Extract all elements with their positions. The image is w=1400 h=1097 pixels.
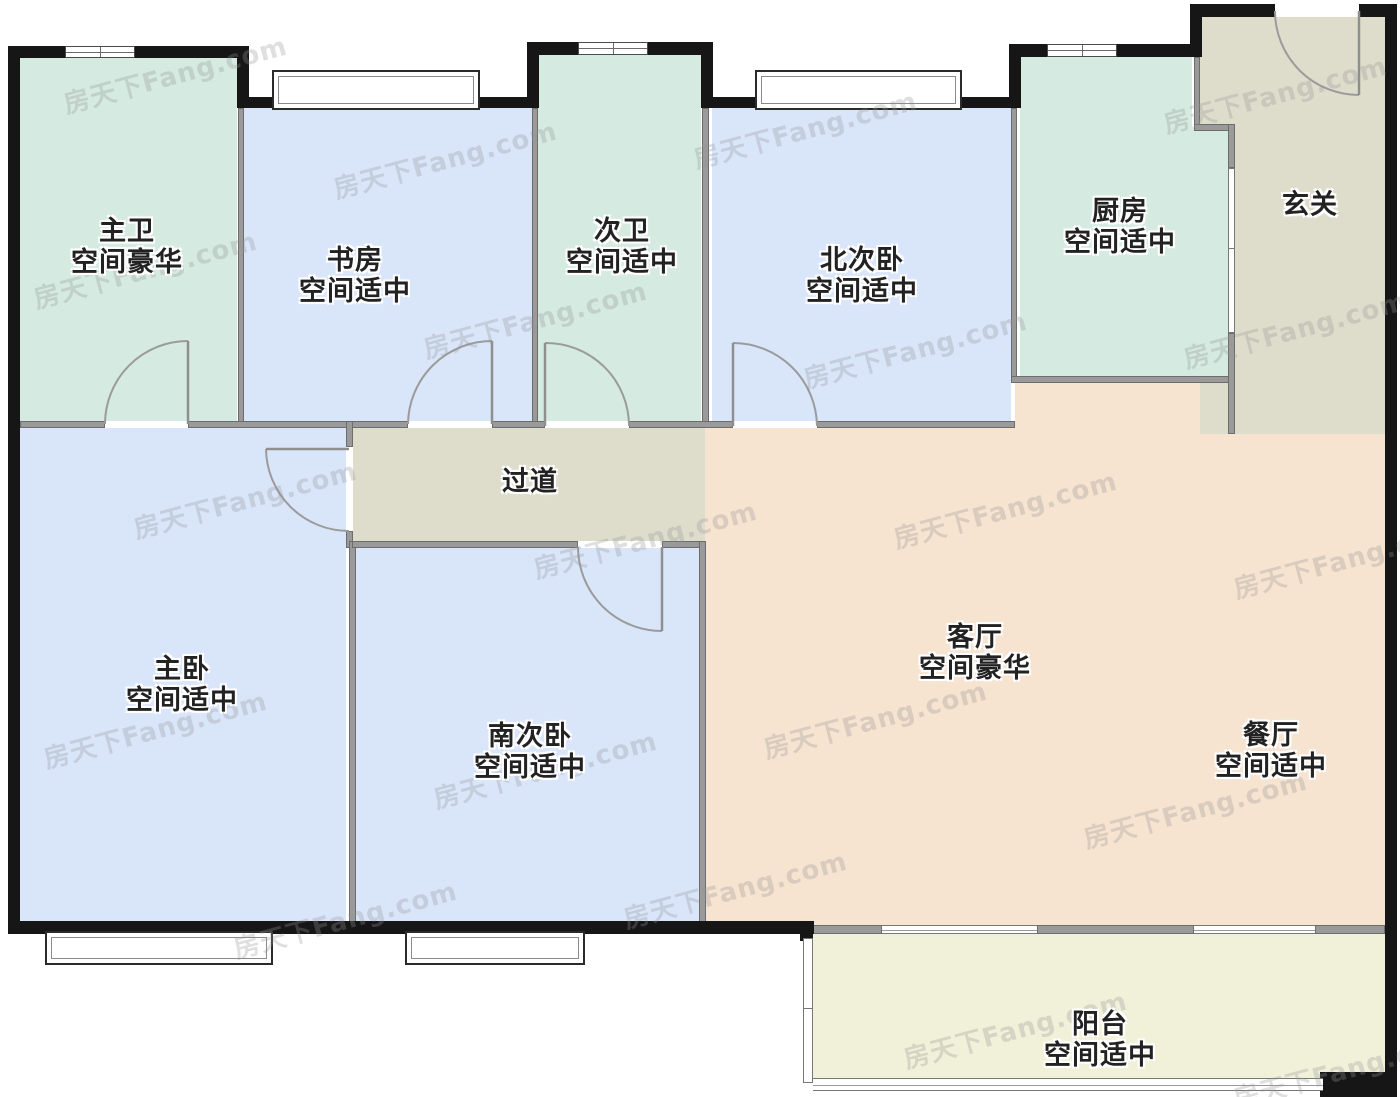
door-opening [408,421,492,428]
window [1228,168,1235,333]
floor-plan: 房天下Fang.com 房天下Fang.com 房天下Fang.com 房天下F… [0,0,1400,1097]
room-name: 主卫 [71,216,183,247]
door-opening [1275,4,1359,17]
room-tag: 空间适中 [299,276,411,307]
room-tag: 空间适中 [126,685,238,716]
room-name: 南次卧 [474,721,586,752]
interior-wall [20,421,105,428]
room-tag: 空间适中 [806,276,918,307]
kitchen-area-upper [1020,57,1192,129]
room-label-master-bath: 主卫 空间豪华 [71,216,183,278]
outer-wall [8,46,20,934]
window-mullion [813,1085,1323,1086]
room-name: 书房 [299,245,411,276]
door-opening [545,421,629,428]
window [1047,44,1117,57]
room-name: 厨房 [1064,196,1176,227]
bay-window [755,70,962,110]
interior-wall [238,108,244,425]
room-tag: 空间适中 [1064,227,1176,258]
room-name: 餐厅 [1215,720,1327,751]
bay-window-frame [278,76,474,104]
interior-wall [1011,376,1234,383]
room-label-kitchen: 厨房 空间适中 [1064,196,1176,258]
interior-wall [346,421,353,447]
room-name: 北次卧 [806,245,918,276]
room-tag: 空间适中 [474,752,586,783]
room-name: 阳台 [1044,1009,1156,1040]
interior-wall [699,541,706,922]
room-label-entry: 玄关 [1282,189,1338,220]
interior-wall [1011,108,1017,380]
outer-wall [701,97,759,108]
room-name: 过道 [502,466,558,497]
interior-wall [492,421,545,428]
window [813,1078,1323,1091]
window-mullion [804,1008,812,1009]
bay-window-frame [51,937,267,959]
window-mullion [1229,248,1234,249]
bay-window [405,931,585,965]
outer-wall [237,97,275,108]
outer-wall [1320,1072,1397,1097]
interior-wall [352,541,578,548]
window-mullion [100,47,101,57]
room-name: 玄关 [1282,189,1338,220]
interior-wall [702,108,709,425]
room-tag: 空间适中 [566,247,678,278]
interior-wall [1228,124,1235,168]
room-tag: 空间豪华 [919,653,1031,684]
door-opening [346,447,353,531]
room-tag: 空间适中 [1044,1040,1156,1071]
room-label-south-bedroom: 南次卧 空间适中 [474,721,586,783]
bay-window-frame [761,76,956,104]
room-name: 次卫 [566,216,678,247]
room-label-dining: 餐厅 空间适中 [1215,720,1327,782]
interior-wall [349,541,356,922]
room-label-second-bath: 次卫 空间适中 [566,216,678,278]
outer-wall [1190,4,1275,17]
interior-wall [188,421,408,428]
room-label-balcony: 阳台 空间适中 [1044,1009,1156,1071]
room-label-living: 客厅 空间豪华 [919,622,1031,684]
interior-wall [813,925,882,934]
window [803,938,813,1083]
interior-wall [817,421,1015,428]
living-dining-area [705,428,1385,925]
door-opening [105,421,188,428]
window-mullion [1082,45,1083,56]
interior-wall [1037,925,1194,934]
room-tag: 空间适中 [1215,751,1327,782]
outer-wall [1385,4,1397,1097]
bay-window [272,70,480,110]
room-tag: 空间豪华 [71,247,183,278]
room-label-hallway: 过道 [502,466,558,497]
window-mullion [613,43,614,54]
bay-window-frame [411,937,579,959]
interior-wall [1194,57,1200,127]
room-name: 客厅 [919,622,1031,653]
interior-wall [629,421,733,428]
interior-wall [1315,925,1385,934]
room-label-north-bedroom: 北次卧 空间适中 [806,245,918,307]
bay-window [45,931,273,965]
window [65,46,135,58]
door-opening [578,541,662,548]
window [578,42,648,55]
door-opening [733,421,817,428]
room-name: 主卧 [126,654,238,685]
interior-wall [1228,333,1235,434]
room-label-master-bedroom: 主卧 空间适中 [126,654,238,716]
interior-wall [532,108,538,425]
room-label-study: 书房 空间适中 [299,245,411,307]
